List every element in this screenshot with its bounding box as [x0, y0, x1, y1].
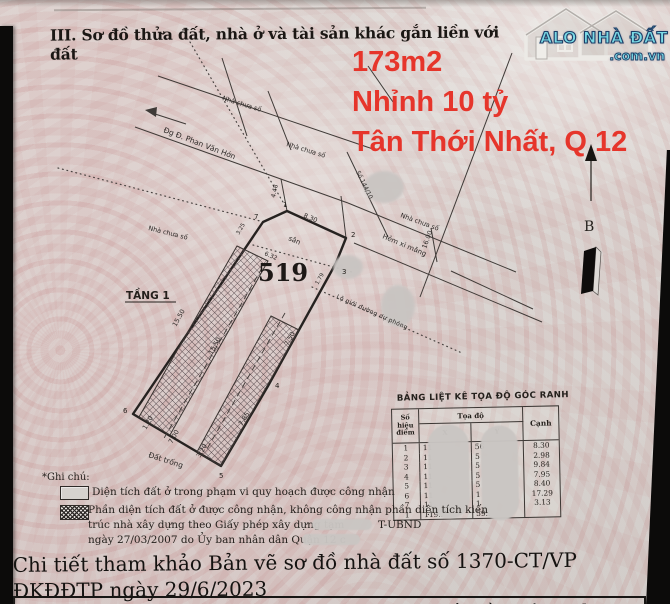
photo-left-edge — [0, 26, 13, 604]
yard-label: sân — [287, 234, 302, 246]
vertex-label: 4 — [275, 382, 280, 390]
house-no-number-label: Nhà chưa số — [221, 94, 262, 113]
photo-top-edge — [0, 0, 670, 7]
legend-heading: *Ghi chú: — [42, 472, 90, 483]
north-bar-symbol — [581, 247, 601, 295]
redaction-blob — [302, 534, 360, 545]
vertex-label: 2 — [351, 231, 355, 239]
annotation-price: Nhỉnh 10 tỷ — [352, 82, 627, 122]
house-no-number-label: Nhà chưa số — [399, 211, 440, 232]
legend-item-1: Diện tích đất ở trong phạm vi quy hoạch … — [92, 486, 395, 498]
annotation-location: Tân Thới Nhất, Q 12 — [352, 122, 627, 162]
measurement-label: 16.00 — [420, 229, 434, 249]
measurement-label: 4.48 — [270, 184, 280, 199]
logo: ALO NHÀ ĐẤT .com.vn — [518, 1, 668, 73]
house-no-number-label: Nhà chưa số — [285, 140, 326, 159]
cell-point: 3 — [393, 462, 420, 472]
measurement-label: 3.25 — [236, 222, 248, 236]
floor-label: TẦNG 1 — [126, 288, 170, 302]
next-section-frame — [13, 596, 646, 604]
cell-point: 1 — [393, 443, 420, 453]
cell-point: 6 — [394, 491, 421, 501]
cell-point: 2 — [393, 453, 420, 463]
vertex-label: 3 — [342, 268, 346, 276]
parcel-number: 519 — [258, 258, 308, 287]
north-label: B — [584, 219, 594, 235]
road-name-label: Đg Đ. Phan Văn Hớn — [162, 125, 237, 161]
legend-item-2-line2: trúc nhà xây dựng theo Giấy phép xây dựn… — [88, 519, 344, 531]
measurement-label: 15.50 — [171, 308, 187, 328]
logo-text: ALO NHÀ ĐẤT — [540, 28, 668, 47]
house-no-number-label: Nhà chưa số — [148, 224, 189, 242]
legend-swatch-hatched — [60, 505, 89, 520]
land-certificate-photo: 519 TẦNG 1 sân Đất trống Đg Đ. Phan Văn … — [0, 0, 670, 604]
cell-edge — [525, 507, 560, 517]
legend-item-2-line2-end: T-UBND — [378, 519, 421, 531]
vertex-label: 7 — [254, 213, 258, 221]
col-header-edge: Cạnh — [523, 406, 559, 440]
coords-table: BẢNG LIỆT KÊ TỌA ĐỘ GÓC RANH Số hiệu điể… — [391, 390, 566, 521]
redaction-blob — [312, 519, 372, 530]
vertex-label: 5 — [219, 472, 223, 480]
cell-point: 4 — [393, 472, 420, 482]
vertex-label: 6 — [123, 407, 128, 415]
vacant-land-label: Đất trống — [147, 450, 184, 470]
col-header-point: Số hiệu điểm — [392, 409, 420, 443]
road-direction-arrow — [145, 107, 157, 117]
logo-domain: .com.vn — [609, 48, 665, 63]
cell-point: 5 — [394, 481, 421, 491]
legend-item-2-line1: Phần diện tích đất ở được công nhận, khô… — [88, 504, 488, 516]
legend-swatch-plain — [60, 486, 89, 500]
coords-table-title: BẢNG LIỆT KÊ TỌA ĐỘ GÓC RANH — [397, 390, 563, 403]
vertex-label: 1 — [283, 201, 287, 209]
col-header-point-line2: điểm — [392, 429, 418, 437]
